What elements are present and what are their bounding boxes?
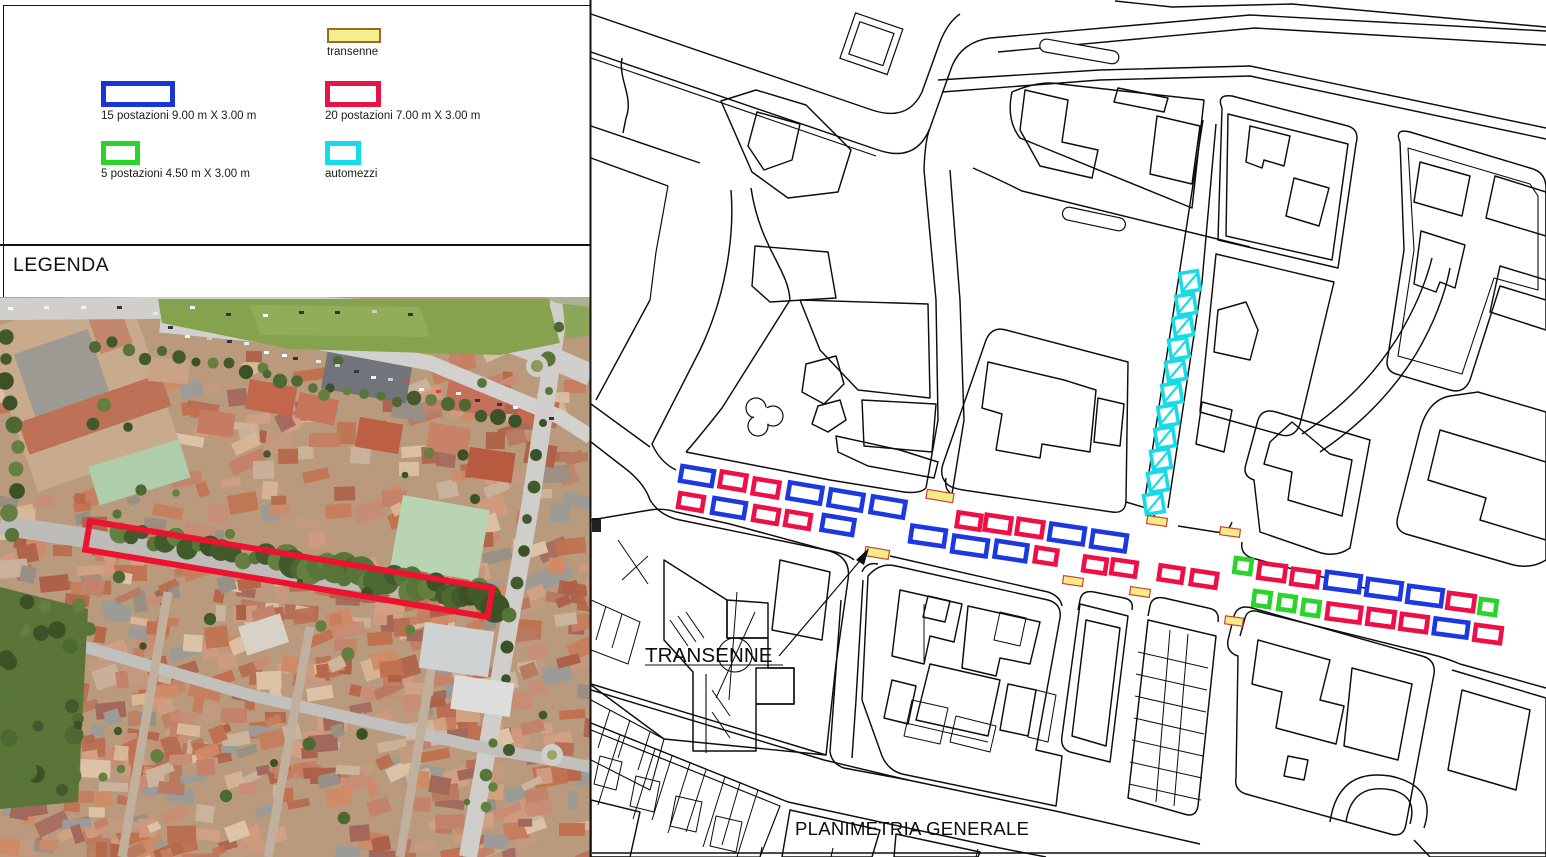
svg-text:TRANSENNE: TRANSENNE — [645, 644, 773, 667]
svg-text:PLANIMETRIA GENERALE: PLANIMETRIA GENERALE — [795, 818, 1029, 839]
